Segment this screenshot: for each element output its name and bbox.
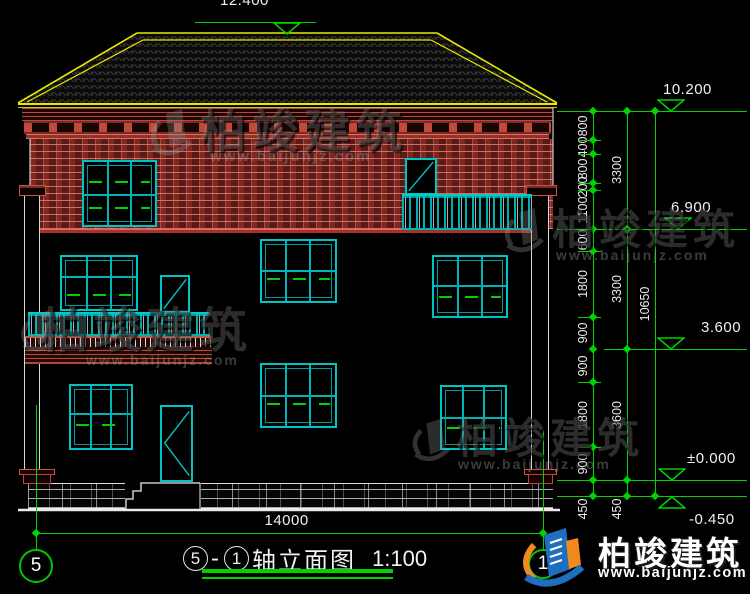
brand-logo: 柏竣建筑 www.baijunjz.com xyxy=(512,521,750,591)
dim-extension-line xyxy=(578,190,601,191)
watermark-3: 柏竣建筑 www.baijunjz.com xyxy=(18,306,60,357)
dim-extension-line xyxy=(578,317,601,318)
dim-label: 3300 xyxy=(610,156,624,184)
dim-extension-line xyxy=(578,183,601,184)
dim-label: 900 xyxy=(576,323,590,344)
elevation-triangle-icon xyxy=(273,22,301,35)
dim-tick xyxy=(589,345,597,353)
axis-bubble-5: 5 xyxy=(19,549,53,583)
dim-label: 450 xyxy=(610,499,624,520)
elevation-line xyxy=(557,480,747,481)
dim-label: 200 xyxy=(576,176,590,197)
elevation-label: ±0.000 xyxy=(687,450,736,467)
dim-label: 900 xyxy=(576,355,590,376)
elevation-triangle-icon xyxy=(658,496,686,509)
elevation-label: 10.200 xyxy=(663,81,712,98)
elevation-triangle-icon xyxy=(657,337,685,350)
dim-label: 1800 xyxy=(576,270,590,298)
dimension-layer: 8004008002001100600180090090018009004503… xyxy=(0,0,750,594)
title-scale: 1:100 xyxy=(372,546,427,572)
dim-chain-line xyxy=(655,111,656,496)
elevation-label: 3.600 xyxy=(701,319,741,336)
brand-logo-url: www.baijunjz.com xyxy=(598,565,747,581)
elevation-label: 12.400 xyxy=(220,0,269,9)
dim-label: 450 xyxy=(576,499,590,520)
brand-logo-icon xyxy=(514,523,592,589)
title-axis-end-bubble: 1 xyxy=(224,546,249,571)
dim-label: 10650 xyxy=(638,286,652,321)
title-axis-start-bubble: 5 xyxy=(183,546,208,571)
dim-extension-line xyxy=(578,382,601,383)
elevation-line xyxy=(557,496,747,497)
watermark-brand: 柏竣建筑 xyxy=(456,418,644,460)
dim-extension-line xyxy=(578,154,601,155)
elevation-triangle-icon xyxy=(658,468,686,481)
dim-extension-line xyxy=(578,140,601,141)
dim-label: 800 xyxy=(576,115,590,136)
elevation-drawing-canvas: 8004008002001100600180090090018009004503… xyxy=(0,0,750,594)
title-underline-thick xyxy=(202,569,393,573)
axis-grid-line xyxy=(36,405,37,549)
dim-label: 3300 xyxy=(610,275,624,303)
elevation-triangle-icon xyxy=(657,99,685,112)
watermark-logo-icon xyxy=(410,414,452,462)
elevation-line xyxy=(557,111,747,112)
watermark-logo-icon xyxy=(502,203,546,253)
watermark-url: www.baijunjz.com xyxy=(556,247,709,263)
watermark-url: www.baijunjz.com xyxy=(458,456,611,472)
watermark-brand: 柏竣建筑 xyxy=(552,209,740,251)
bottom-dim-label: 14000 xyxy=(265,512,309,529)
bottom-dim-line xyxy=(36,533,543,534)
watermark-url: www.baijunjz.com xyxy=(210,148,371,165)
watermark-logo-icon xyxy=(148,104,194,156)
watermark-1: 柏竣建筑 www.baijunjz.com xyxy=(148,104,194,161)
watermark-2: 柏竣建筑 www.baijunjz.com xyxy=(502,203,546,258)
watermark-brand: 柏竣建筑 xyxy=(40,308,252,356)
title-underline-thin xyxy=(202,577,393,579)
watermark-url: www.baijunjz.com xyxy=(86,352,239,368)
watermark-4: 柏竣建筑 www.baijunjz.com xyxy=(410,414,452,467)
